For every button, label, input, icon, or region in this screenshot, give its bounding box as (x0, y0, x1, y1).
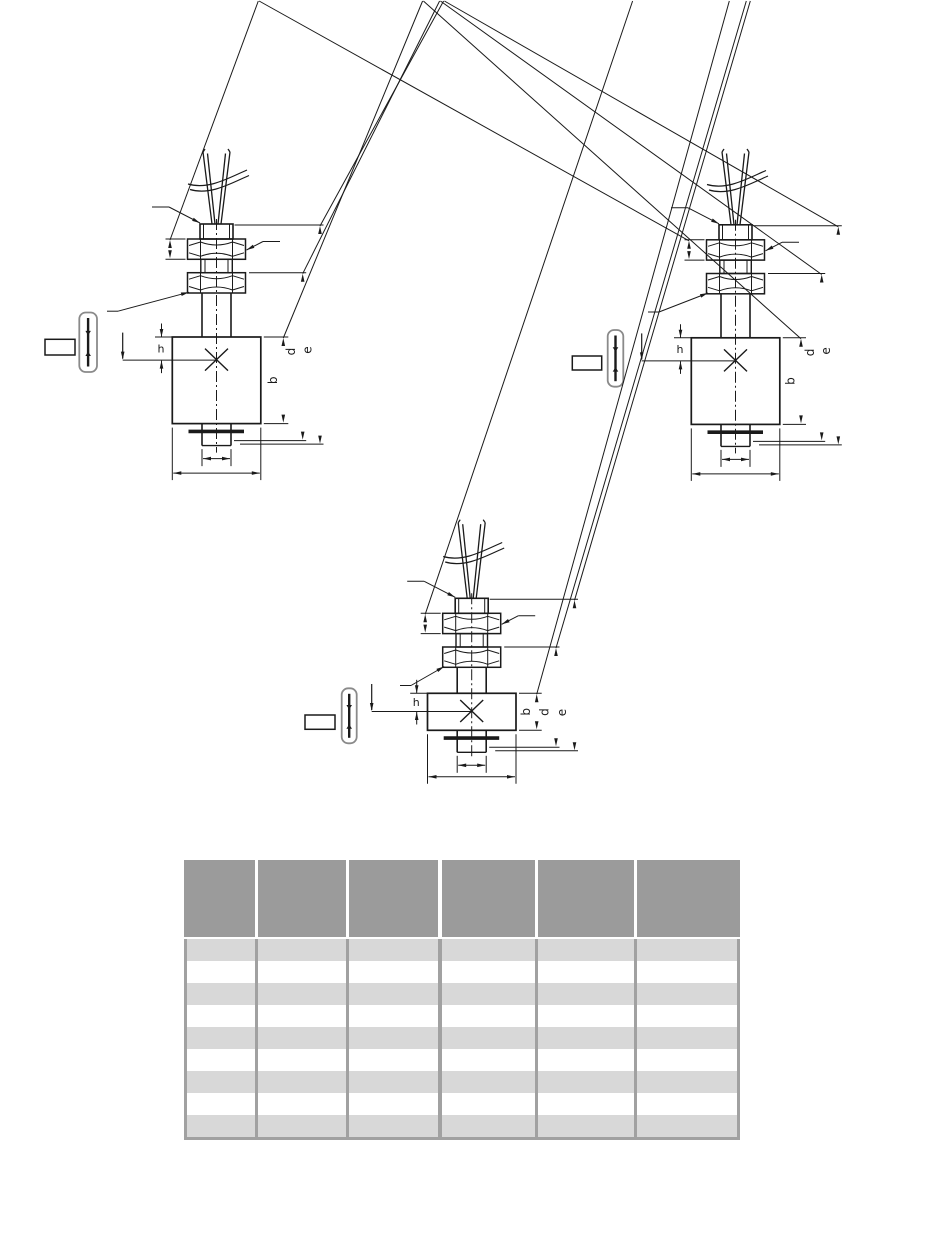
float-switch-diagram-center: hbde (305, 1, 750, 784)
table-cell (258, 1071, 346, 1093)
dim-label-d: d (538, 708, 552, 716)
table-header-cell (442, 860, 535, 937)
table-cell (349, 1027, 438, 1049)
dim-label-e: e (301, 346, 315, 353)
table-cell (637, 1049, 737, 1071)
dim-label-b: b (519, 708, 533, 716)
table-cell (538, 1049, 634, 1071)
table-cell (187, 1049, 255, 1071)
dim-label-h: h (413, 696, 420, 709)
table-cell (349, 1049, 438, 1071)
table-cell (538, 1093, 634, 1115)
float-switch-diagram-right: hbde (259, 1, 842, 481)
table-body (184, 939, 740, 1141)
terminal-box (45, 339, 75, 355)
table-row (187, 1027, 737, 1049)
table-cell (258, 1049, 346, 1071)
leader-cable-gland (671, 208, 719, 224)
table-cell (349, 961, 438, 983)
table-cell (538, 939, 634, 961)
reed-switch-symbol (79, 313, 97, 373)
terminal-box (572, 356, 601, 370)
table-header-cell (184, 860, 255, 937)
table-cell (442, 1027, 535, 1049)
table-cell (258, 983, 346, 1005)
dim-tube-diameter (457, 756, 486, 773)
dim-label-b: b (784, 377, 798, 385)
terminal-box (305, 715, 335, 729)
reed-switch-symbol (342, 688, 357, 743)
table-cell (187, 1071, 255, 1093)
table-cell (258, 1115, 346, 1137)
dim-label-d: d (284, 348, 298, 356)
table-cell (637, 961, 737, 983)
table-cell (349, 1071, 438, 1093)
table-cell (187, 1027, 255, 1049)
dim-e: e (444, 1, 841, 445)
cable-wires (458, 520, 485, 599)
dim-nut-height (259, 1, 704, 260)
table-cell (349, 983, 438, 1005)
table-row (187, 1049, 737, 1071)
dim-label-d: d (803, 349, 817, 357)
table-cell (442, 1005, 535, 1027)
leader-hex-nut-upper (247, 242, 281, 251)
table-cell (349, 1115, 438, 1137)
dim-h: h (410, 680, 428, 725)
leader-cable-gland (407, 581, 455, 597)
dim-label-e: e (555, 709, 569, 716)
table-row (187, 983, 737, 1005)
table-cell (637, 1027, 737, 1049)
table-cell (637, 939, 737, 961)
table-cell (187, 1005, 255, 1027)
table-header-cell (349, 860, 438, 937)
table-cell (637, 1115, 737, 1137)
dim-label-b: b (266, 376, 280, 384)
dim-d: d (234, 1, 440, 441)
table-cell (442, 961, 535, 983)
leader-hex-nut-lower (107, 292, 189, 311)
table-cell (187, 983, 255, 1005)
table-cell (538, 1005, 634, 1027)
dim-nut-height (421, 1, 633, 634)
table-cell (538, 961, 634, 983)
cable-break-mark (443, 543, 504, 564)
table-cell (637, 1071, 737, 1093)
table-cell (442, 939, 535, 961)
table-cell (442, 983, 535, 1005)
cable-break-mark (188, 170, 249, 191)
table-cell (187, 1093, 255, 1115)
dim-h: h (155, 324, 173, 374)
dim-label-e: e (819, 347, 833, 354)
table-cell (538, 1027, 634, 1049)
table-row (187, 1071, 737, 1093)
leader-cable-gland (152, 207, 200, 223)
table-header-row (184, 860, 740, 937)
table-cell (187, 961, 255, 983)
table-header-cell (258, 860, 346, 937)
table-cell (349, 1005, 438, 1027)
table-cell (442, 1093, 535, 1115)
table-row (187, 961, 737, 983)
table-cell (637, 1005, 737, 1027)
table-cell (258, 1005, 346, 1027)
table-cell (187, 1115, 255, 1137)
document-page: hbdehbdehbde (0, 0, 950, 1254)
table-cell (538, 1115, 634, 1137)
leader-hex-nut-upper (502, 616, 536, 625)
cable-wires (722, 149, 749, 225)
dim-h: h (674, 324, 692, 374)
table-row (187, 1005, 737, 1027)
table-cell (442, 1115, 535, 1137)
table-cell (258, 1093, 346, 1115)
table-cell (258, 939, 346, 961)
table-cell (349, 1093, 438, 1115)
table-cell (258, 961, 346, 983)
table-cell (349, 939, 438, 961)
table-cell (538, 983, 634, 1005)
table-cell (637, 1093, 737, 1115)
reed-switch-symbol (608, 330, 624, 387)
leader-hex-nut-lower (648, 293, 708, 312)
dimensions-table (184, 860, 740, 1140)
table-cell (258, 1027, 346, 1049)
table-header-cell (637, 860, 740, 937)
table-cell (187, 939, 255, 961)
table-cell (442, 1071, 535, 1093)
table-row (187, 1093, 737, 1115)
table-cell (637, 983, 737, 1005)
table-row (187, 939, 737, 961)
dim-label-h: h (677, 343, 684, 356)
dim-d: d (440, 1, 825, 441)
table-cell (538, 1071, 634, 1093)
leader-hex-nut-lower (400, 667, 444, 686)
table-header-cell (538, 860, 634, 937)
cable-wires (203, 149, 230, 224)
dim-label-h: h (158, 342, 165, 355)
dim-b: b (264, 1, 423, 424)
table-cell (442, 1049, 535, 1071)
table-row (187, 1115, 737, 1137)
float-switch-diagram-left: hbde (45, 1, 444, 480)
